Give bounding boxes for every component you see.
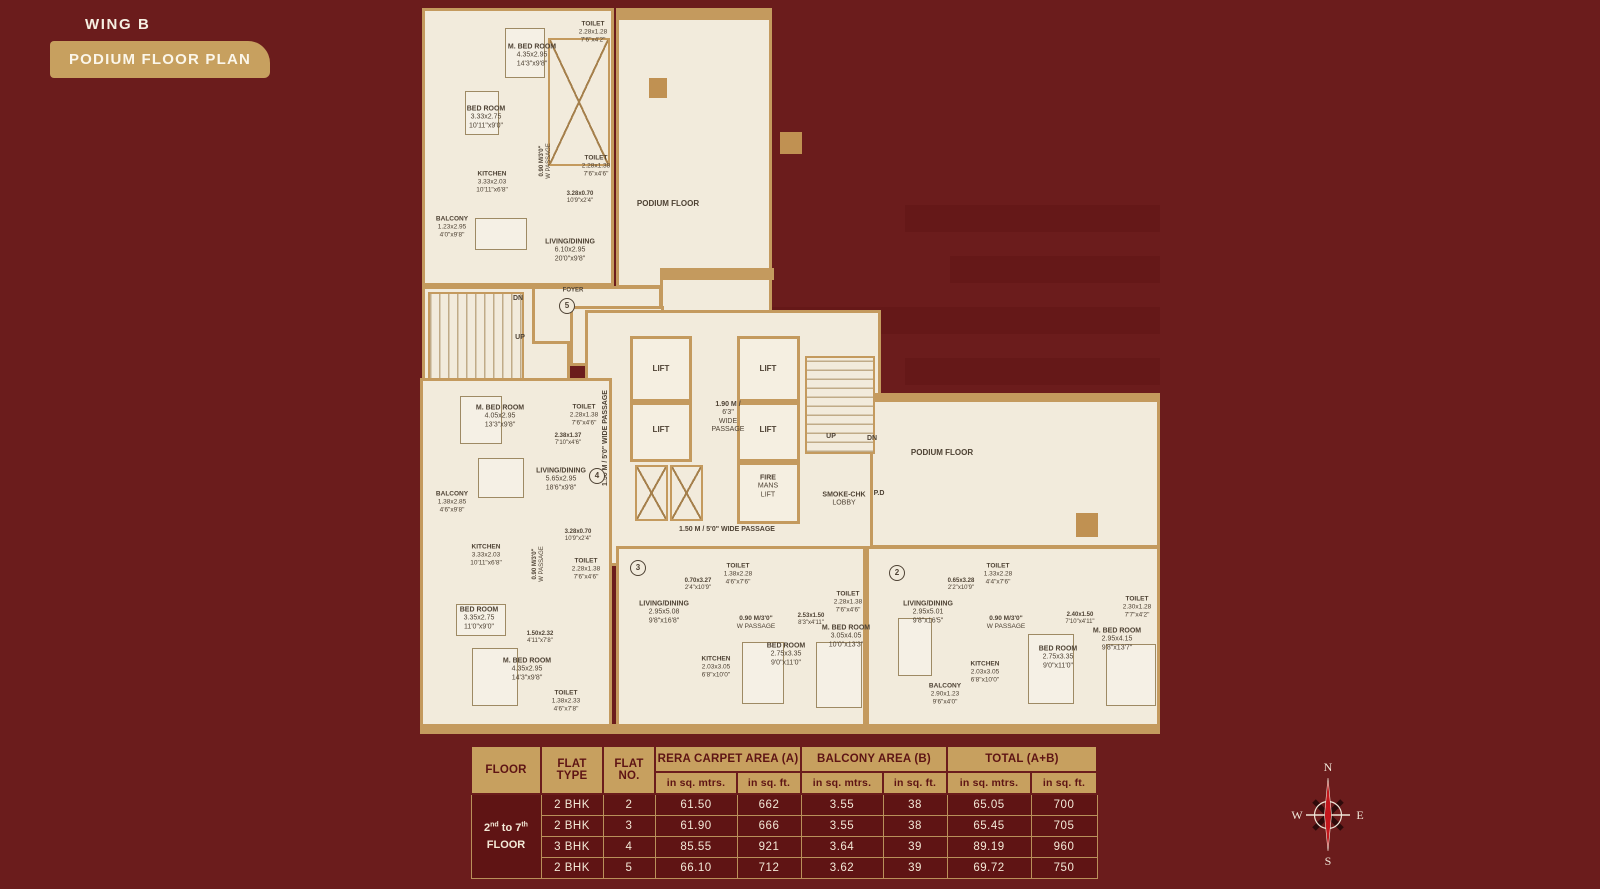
carpet-sqm: 85.55	[655, 837, 737, 858]
plan-label-f3_dim1: 0.70x3.272'4"x10'9"	[685, 578, 712, 592]
plan-label-t5_bed: BED ROOM3.33x2.7510'11"x9'0"	[467, 105, 506, 130]
plan-label-f3_kitchen: KITCHEN2.03x3.056'8"x10'0"	[702, 655, 731, 678]
wall-band-1	[616, 8, 772, 20]
plan-label-podium_top: PODIUM FLOOR	[637, 199, 699, 209]
col-header-balcony-area: BALCONY AREA (B)	[801, 746, 947, 772]
balcony-sqft: 39	[883, 858, 947, 879]
plan-label-f3_living: LIVING/DINING2.95x5.089'8"x16'8"	[639, 600, 689, 625]
compass-south-label: S	[1325, 854, 1332, 868]
col-header-total: TOTAL (A+B)	[947, 746, 1097, 772]
wall-band-4	[870, 393, 1160, 402]
compass-rose: N W E S	[1283, 753, 1373, 871]
plan-label-f4_living: LIVING/DINING5.65x2.9518'6"x9'8"	[536, 467, 586, 492]
plan-label-f4_mbed2: M. BED ROOM4.35x2.9514'3"x9'8"	[503, 657, 551, 682]
plan-label-f4_toilet1: TOILET2.28x1.387'6"x4'6"	[570, 403, 599, 426]
plan-label-fire: FIREMANSLIFT	[758, 474, 778, 499]
plan-label-hpass: 1.50 M / 5'0" WIDE PASSAGE	[679, 526, 775, 534]
plan-label-circ3: 3	[630, 560, 646, 576]
floor-plan: TOILET2.28x1.287'6"x4'2"M. BED ROOM4.35x…	[420, 6, 1165, 738]
plan-label-t5_kitchen: KITCHEN3.33x2.0310'11"x6'8"	[476, 170, 508, 193]
plan-label-f2_dim2: 2.40x1.507'10"x4'11"	[1065, 612, 1094, 626]
flat-type: 2 BHK	[541, 858, 603, 879]
total-sqm: 65.05	[947, 794, 1031, 816]
plan-label-f4_mbed: M. BED ROOM4.05x2.9513'3"x9'8"	[476, 404, 524, 429]
col-header-flat-type: FLAT TYPE	[541, 746, 603, 794]
shaft-3	[548, 38, 610, 166]
plan-label-f2_balcony: BALCONY2.90x1.239'6"x4'0"	[929, 682, 961, 705]
staircase-top-left	[428, 292, 524, 380]
plan-label-f4_bed: BED ROOM3.35x2.7511'0"x9'0"	[460, 606, 499, 631]
plan-label-pass190: 1.90 M /6'3"WIDEPASSAGE	[712, 401, 745, 435]
compass-north-label: N	[1324, 760, 1333, 774]
flat-no: 4	[603, 837, 655, 858]
plan-label-t5_pass: 0.90 M/3'0"W PASSAGE	[539, 143, 553, 179]
plan-label-circ2: 2	[889, 565, 905, 581]
carpet-sqm: 61.50	[655, 794, 737, 816]
area-statement-table: FLOOR FLAT TYPE FLAT NO. RERA CARPET ARE…	[470, 745, 1098, 879]
wall-band-3	[420, 724, 1160, 734]
balcony-sqft: 38	[883, 794, 947, 816]
table-row: 3 BHK485.559213.643989.19960	[471, 837, 1097, 858]
balcony-sqm: 3.64	[801, 837, 883, 858]
balcony-sqm: 3.55	[801, 816, 883, 837]
plan-label-f2_pass: 0.90 M/3'0"W PASSAGE	[987, 615, 1026, 631]
total-sqft: 960	[1031, 837, 1097, 858]
carpet-sqm: 66.10	[655, 858, 737, 879]
plan-label-dn2: DN	[867, 435, 877, 443]
table-row: 2nd to 7thFLOOR2 BHK261.506623.553865.05…	[471, 794, 1097, 816]
column-2	[780, 132, 802, 154]
flat-type: 3 BHK	[541, 837, 603, 858]
balcony-sqm: 3.62	[801, 858, 883, 879]
plan-label-t5_dim1: 3.28x0.7010'9"x2'4"	[567, 191, 594, 205]
wing-title: WING B	[85, 16, 150, 33]
plan-label-lift1: LIFT	[653, 364, 670, 374]
plan-label-up1: UP	[515, 334, 525, 342]
plan-label-pd: P.D	[874, 490, 885, 498]
shaft-1	[635, 465, 668, 521]
plan-label-f3_toilet1: TOILET1.38x2.284'6"x7'6"	[724, 562, 753, 585]
total-sqft: 700	[1031, 794, 1097, 816]
plan-label-f4_dim3: 1.50x2.324'11"x7'8"	[527, 631, 554, 645]
plan-label-t5_toilet1: TOILET2.28x1.287'6"x4'2"	[579, 20, 608, 43]
plan-label-f4_balcony: BALCONY1.38x2.854'6"x9'8"	[436, 490, 468, 513]
total-sqft: 750	[1031, 858, 1097, 879]
col-header-flat-no: FLAT NO.	[603, 746, 655, 794]
subheader-balcony-sqft: in sq. ft.	[883, 772, 947, 794]
subheader-carpet-sqm: in sq. mtrs.	[655, 772, 737, 794]
total-sqft: 705	[1031, 816, 1097, 837]
flat-type: 2 BHK	[541, 816, 603, 837]
plan-label-lift3: LIFT	[760, 364, 777, 374]
plan-label-f4_pass: 0.90 M/3'0"W PASSAGE	[532, 546, 546, 582]
balcony-sqm: 3.55	[801, 794, 883, 816]
subheader-carpet-sqft: in sq. ft.	[737, 772, 801, 794]
carpet-sqm: 61.90	[655, 816, 737, 837]
plan-label-lift2: LIFT	[653, 425, 670, 435]
balcony-sqft: 39	[883, 837, 947, 858]
plan-label-podium_right: PODIUM FLOOR	[911, 448, 973, 458]
compass-east-label: E	[1356, 808, 1363, 822]
carpet-sqft: 666	[737, 816, 801, 837]
compass-needle-graphic	[1306, 778, 1350, 851]
furniture-11	[1106, 644, 1156, 706]
col-header-rera-carpet-area: RERA CARPET AREA (A)	[655, 746, 801, 772]
total-sqm: 65.45	[947, 816, 1031, 837]
plan-label-f3_mbed: M. BED ROOM3.05x4.0510'0"x13'3"	[822, 624, 870, 649]
plan-label-f4_dim1: 2.38x1.377'10"x4'6"	[555, 433, 582, 447]
plan-label-up2: UP	[826, 433, 836, 441]
shaft-2	[670, 465, 703, 521]
plan-label-f4_toilet3: TOILET1.38x2.334'6"x7'8"	[552, 689, 581, 712]
plan-label-foyer: FOYER	[563, 287, 584, 294]
column-1	[649, 78, 667, 98]
flat-type: 2 BHK	[541, 794, 603, 816]
plan-label-f3_pass: 0.90 M/3'0"W PASSAGE	[737, 615, 776, 631]
table-row: 2 BHK566.107123.623969.72750	[471, 858, 1097, 879]
flat-no: 2	[603, 794, 655, 816]
table-row: 2 BHK361.906663.553865.45705	[471, 816, 1097, 837]
col-header-floor: FLOOR	[471, 746, 541, 794]
furniture-9	[816, 642, 862, 708]
subheader-total-sqft: in sq. ft.	[1031, 772, 1097, 794]
plan-label-f2_living: LIVING/DINING2.95x5.019'8"x16'5"	[903, 600, 953, 625]
furniture-5	[478, 458, 524, 498]
plan-label-t5_mbed: M. BED ROOM4.35x2.9514'3"x9'8"	[508, 43, 556, 68]
plan-label-f2_kitchen: KITCHEN2.03x3.056'8"x10'0"	[971, 660, 1000, 683]
plan-label-f2_toilet2: TOILET2.30x1.287'7"x4'2"	[1123, 595, 1152, 618]
plan-label-f3_bed: BED ROOM2.75x3.359'0"x11'0"	[767, 642, 806, 667]
plan-label-smoke: SMOKE-CHKLOBBY	[822, 492, 865, 509]
plan-label-f2_dim1: 0.65x3.282'2"x10'9"	[948, 578, 975, 592]
staircase-core	[805, 356, 875, 454]
plan-label-f4_kitchen: KITCHEN3.33x2.0310'11"x6'8"	[470, 543, 502, 566]
subheader-total-sqm: in sq. mtrs.	[947, 772, 1031, 794]
total-sqm: 69.72	[947, 858, 1031, 879]
total-sqm: 89.19	[947, 837, 1031, 858]
plan-label-f4_dim2: 3.28x0.7010'9"x2'4"	[565, 529, 592, 543]
plan-label-circ4: 4	[589, 468, 605, 484]
wall-band-2	[660, 268, 774, 280]
plan-badge: PODIUM FLOOR PLAN	[50, 41, 270, 78]
plan-region-top-podium	[616, 8, 772, 288]
balcony-sqft: 38	[883, 816, 947, 837]
plan-label-circ5: 5	[559, 298, 575, 314]
plan-label-f3_toilet2: TOILET2.28x1.387'6"x4'6"	[834, 590, 863, 613]
flat-no: 5	[603, 858, 655, 879]
subheader-balcony-sqm: in sq. mtrs.	[801, 772, 883, 794]
plan-label-f2_toilet1: TOILET1.33x2.284'4"x7'6"	[984, 562, 1013, 585]
plan-label-f2_mbed: M. BED ROOM2.95x4.159'8"x13'7"	[1093, 627, 1141, 652]
plan-region-right-podium	[870, 393, 1160, 548]
floor-range-cell: 2nd to 7thFLOOR	[471, 794, 541, 879]
carpet-sqft: 921	[737, 837, 801, 858]
column-3	[1076, 513, 1098, 537]
compass-west-label: W	[1291, 808, 1303, 822]
furniture-3	[475, 218, 527, 250]
plan-label-lift4: LIFT	[760, 425, 777, 435]
plan-label-f4_toilet2: TOILET2.28x1.387'6"x4'6"	[572, 557, 601, 580]
carpet-sqft: 712	[737, 858, 801, 879]
plan-badge-label: PODIUM FLOOR PLAN	[69, 51, 251, 68]
furniture-12	[898, 618, 932, 676]
carpet-sqft: 662	[737, 794, 801, 816]
plan-label-f3_dim2: 2.53x1.508'3"x4'11"	[798, 613, 825, 627]
plan-label-t5_toilet2: TOILET2.28x1.387'6"x4'6"	[582, 154, 611, 177]
flat-no: 3	[603, 816, 655, 837]
plan-label-t5_living: LIVING/DINING6.10x2.9520'0"x9'8"	[545, 238, 595, 263]
page: WING B PODIUM FLOOR PLAN TOILET2.28x1.28…	[0, 0, 1600, 889]
plan-label-t5_balcony: BALCONY1.23x2.954'0"x9'8"	[436, 215, 468, 238]
plan-label-f2_bed: BED ROOM2.75x3.359'0"x11'0"	[1039, 645, 1078, 670]
plan-label-dn1: DN	[513, 295, 523, 303]
